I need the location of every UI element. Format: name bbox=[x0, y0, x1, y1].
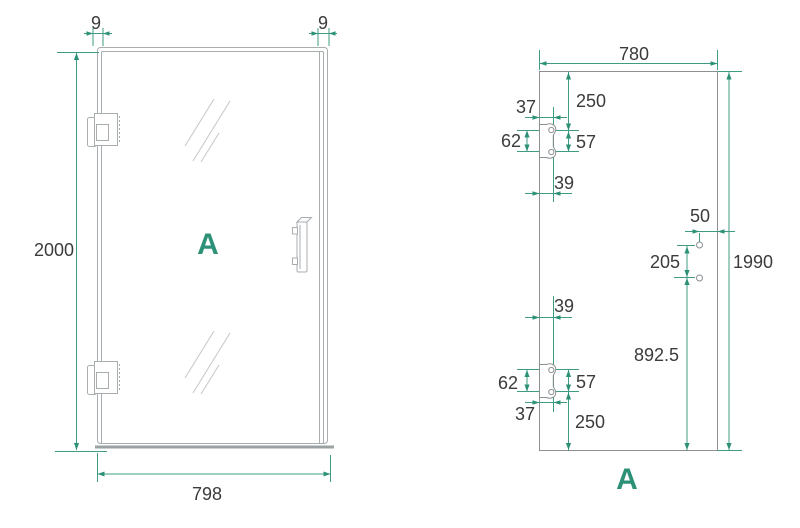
dimension-front-width: 798 bbox=[98, 453, 331, 504]
dim-bottom-hinge-from-bottom: 250 bbox=[575, 412, 605, 432]
hinge-hole-top-2 bbox=[549, 149, 554, 154]
dimension-glass-width: 780 bbox=[540, 44, 718, 70]
glass-reflection-bottom bbox=[185, 331, 230, 394]
front-view: 9 9 2000 798 A bbox=[34, 13, 337, 504]
dim-handle-hole-spacing: 205 bbox=[650, 252, 680, 272]
dimension-frame-left: 9 bbox=[84, 13, 112, 46]
hinge-bottom bbox=[88, 362, 120, 395]
dim-frame-left-value: 9 bbox=[91, 13, 101, 33]
hinge-hole-bottom-1 bbox=[549, 367, 554, 372]
shower-door-technical-drawing: 9 9 2000 798 A bbox=[0, 0, 800, 528]
dim-handle-to-bottom: 892.5 bbox=[634, 345, 679, 365]
glass-view: 780 1990 bbox=[498, 44, 773, 496]
glass-panel-outline bbox=[540, 72, 718, 451]
dim-top-hinge-edge-offset-lower: 39 bbox=[554, 173, 574, 193]
hinge-cutout-bottom bbox=[540, 364, 556, 398]
hinge-hole-bottom-2 bbox=[549, 389, 554, 394]
hinge-top bbox=[88, 114, 120, 147]
door-handle bbox=[293, 218, 312, 273]
dim-bottom-hinge-hole-spacing: 57 bbox=[576, 372, 596, 392]
hinge-hole-top-1 bbox=[549, 127, 554, 132]
dim-glass-height-value: 1990 bbox=[733, 252, 773, 272]
handle-hole-upper bbox=[697, 242, 703, 248]
dim-bottom-hinge-edge-offset-upper: 39 bbox=[554, 296, 574, 316]
dim-top-hinge-edge-offset: 37 bbox=[516, 97, 536, 117]
dim-bottom-hinge-edge-offset: 37 bbox=[515, 404, 535, 424]
front-view-label: A bbox=[197, 228, 219, 261]
dim-top-hinge-hole-spacing: 57 bbox=[576, 132, 596, 152]
handle-hole-lower bbox=[697, 275, 703, 281]
dimension-glass-height: 1990 bbox=[718, 72, 773, 451]
dim-front-width-value: 798 bbox=[192, 484, 222, 504]
hinge-cutout-top bbox=[540, 124, 556, 158]
glass-reflection-top bbox=[185, 99, 230, 162]
dimension-frame-right: 9 bbox=[309, 13, 337, 46]
dim-frame-right-value: 9 bbox=[318, 13, 328, 33]
dim-top-hinge-cutout-height: 62 bbox=[501, 131, 521, 151]
bottom-sill bbox=[95, 446, 334, 449]
dim-handle-hole-to-edge: 50 bbox=[690, 206, 710, 226]
glass-view-label: A bbox=[616, 463, 638, 496]
dim-top-hinge-from-top: 250 bbox=[576, 91, 606, 111]
drawing-canvas: 9 9 2000 798 A bbox=[0, 0, 800, 528]
dim-front-height-value: 2000 bbox=[34, 240, 74, 260]
dim-glass-width-value: 780 bbox=[619, 44, 649, 64]
dim-bottom-hinge-cutout-height: 62 bbox=[498, 373, 518, 393]
